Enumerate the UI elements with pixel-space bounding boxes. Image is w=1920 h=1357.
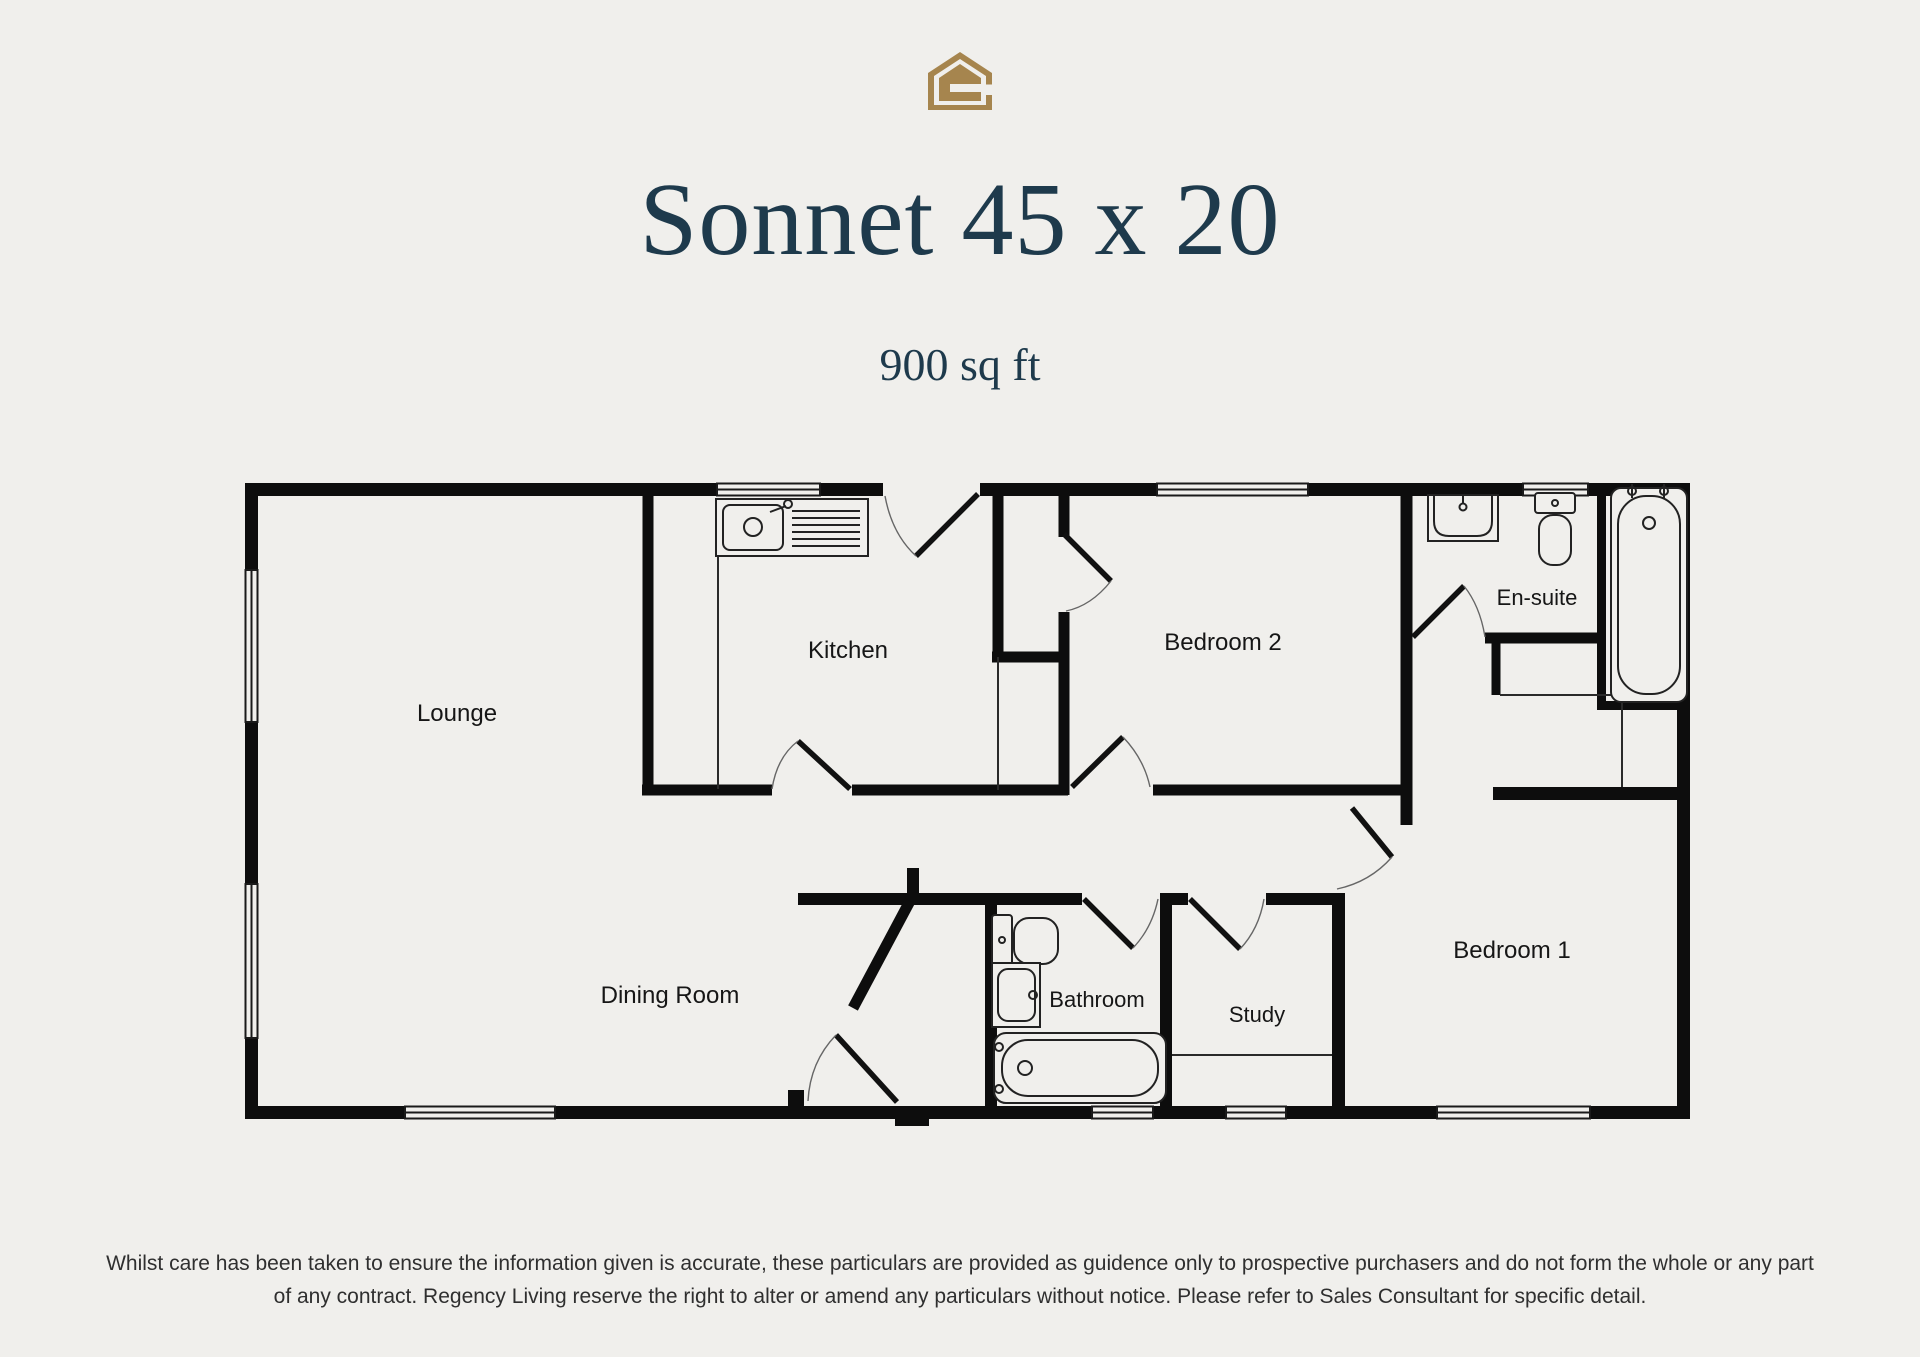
room-label-study: Study <box>1229 1002 1285 1027</box>
outer-walls <box>245 483 1690 1126</box>
window-icon <box>717 484 820 496</box>
window-icon <box>246 570 258 722</box>
window-icon <box>405 1107 555 1119</box>
study-door-icon <box>1190 899 1264 949</box>
kitchen-door-icon <box>772 741 850 789</box>
bathroom-basin-icon <box>992 963 1040 1027</box>
window-icon <box>1092 1107 1153 1119</box>
closet-door-icon <box>1064 534 1111 611</box>
floor-plan: Lounge Kitchen Bedroom 2 En-suite Dining… <box>0 0 1920 1357</box>
kitchen-sink-icon <box>716 499 868 556</box>
ensuite-bath-icon <box>1611 484 1687 702</box>
bedroom2-door-icon <box>1072 737 1150 787</box>
front-door-icon <box>885 494 978 556</box>
window-icon <box>1157 484 1308 496</box>
disclaimer-line-1: Whilst care has been taken to ensure the… <box>0 1248 1920 1281</box>
window-icon <box>1437 1107 1590 1119</box>
room-label-kitchen: Kitchen <box>808 637 888 664</box>
windows <box>246 484 1591 1119</box>
ensuite-basin-icon <box>1428 495 1498 541</box>
interior-walls <box>642 483 1683 1113</box>
ensuite-toilet-icon <box>1535 493 1575 565</box>
room-label-bedroom-2: Bedroom 2 <box>1164 629 1281 656</box>
bathroom-toilet-icon <box>992 915 1058 965</box>
bedroom1-door-icon <box>1337 808 1392 889</box>
bathroom-bath-icon <box>994 1033 1166 1103</box>
room-label-lounge: Lounge <box>417 700 497 727</box>
room-label-bedroom-1: Bedroom 1 <box>1453 937 1570 964</box>
disclaimer-line-2: of any contract. Regency Living reserve … <box>0 1281 1920 1314</box>
bathroom-door-icon <box>1084 899 1158 948</box>
brochure-page: Sonnet 45 x 20 900 sq ft <box>0 0 1920 1357</box>
window-icon <box>246 884 258 1038</box>
window-icon <box>1226 1107 1286 1119</box>
disclaimer: Whilst care has been taken to ensure the… <box>0 1248 1920 1313</box>
room-label-bathroom: Bathroom <box>1049 987 1144 1012</box>
room-label-dining-room: Dining Room <box>601 982 740 1009</box>
dining-hall-door-icon <box>808 1035 897 1102</box>
ensuite-door-icon <box>1413 586 1485 637</box>
room-label-en-suite: En-suite <box>1497 585 1578 610</box>
